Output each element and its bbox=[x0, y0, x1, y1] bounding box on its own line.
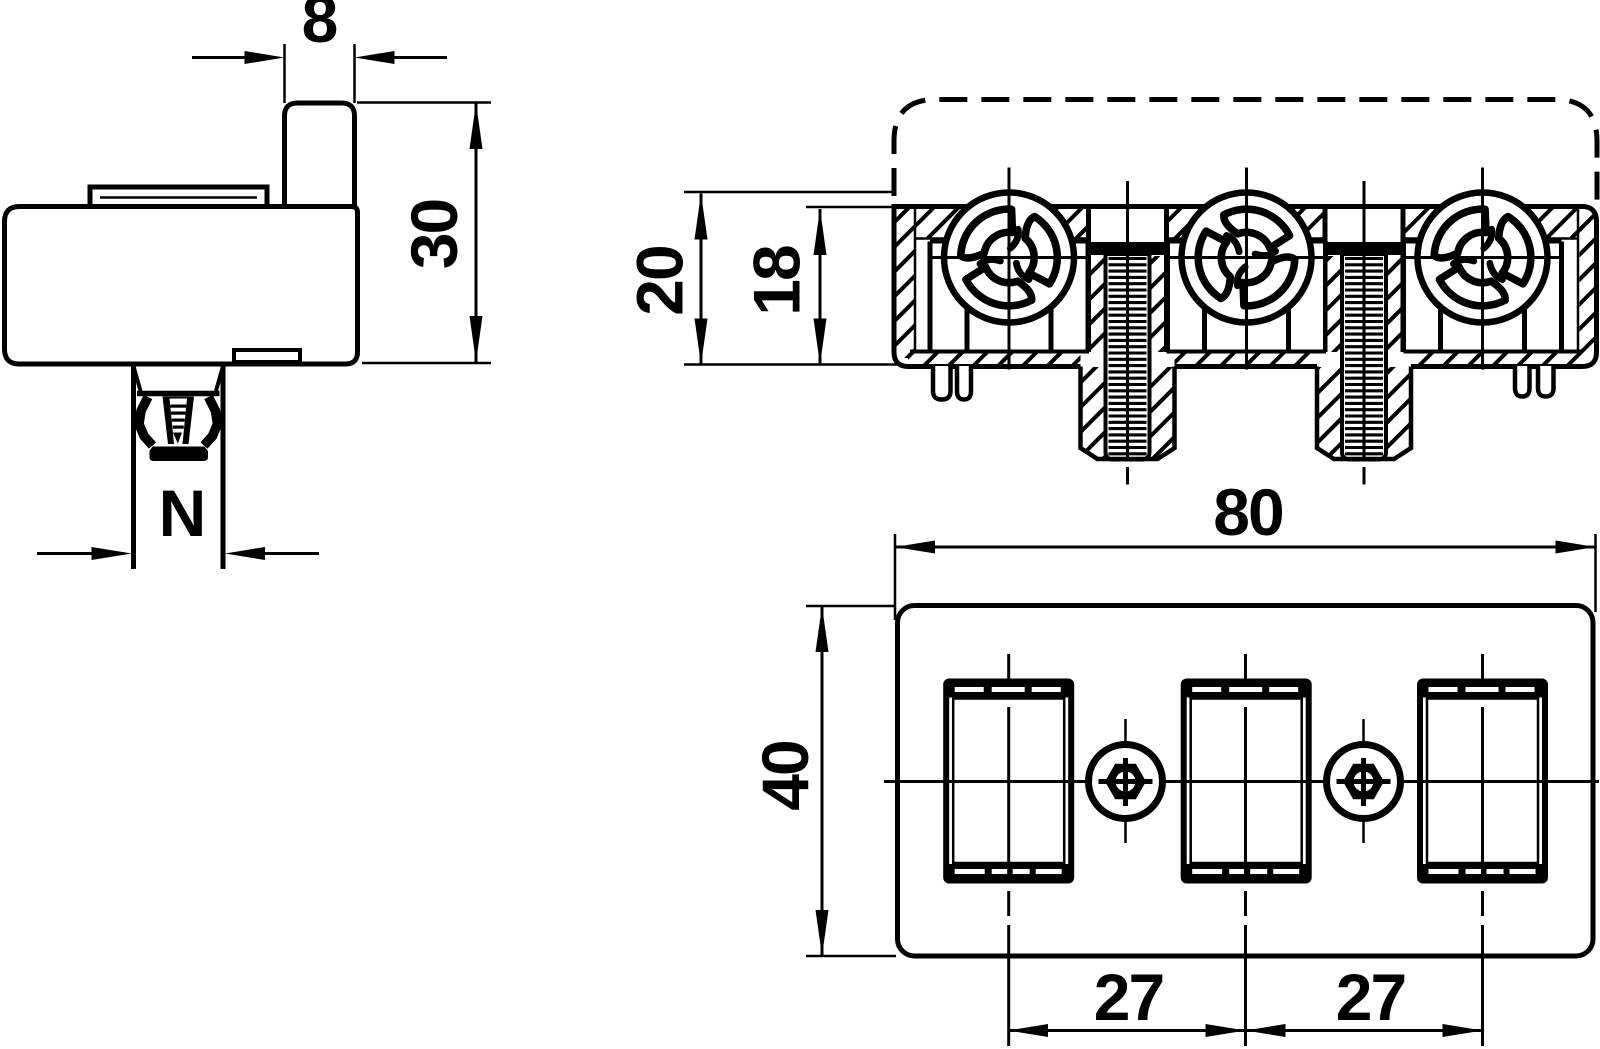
svg-text:40: 40 bbox=[748, 741, 822, 810]
svg-text:8: 8 bbox=[302, 0, 337, 56]
svg-text:30: 30 bbox=[397, 200, 471, 269]
svg-text:N: N bbox=[159, 476, 205, 550]
svg-text:18: 18 bbox=[740, 246, 814, 316]
svg-text:27: 27 bbox=[1336, 960, 1405, 1034]
svg-text:20: 20 bbox=[623, 246, 697, 315]
svg-text:80: 80 bbox=[1213, 475, 1282, 549]
svg-text:27: 27 bbox=[1094, 960, 1163, 1034]
